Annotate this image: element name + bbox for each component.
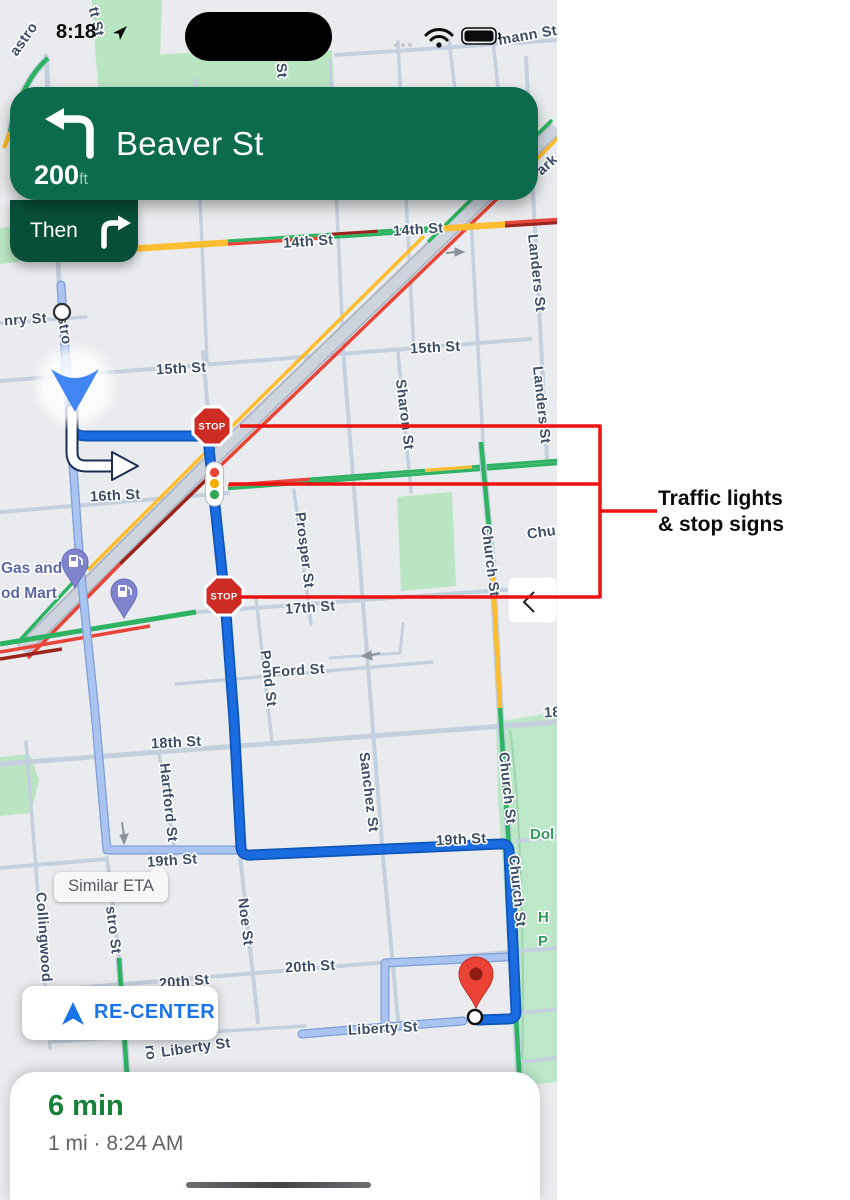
wifi-icon [422, 26, 456, 48]
similar-eta-label: Similar ETA [54, 877, 168, 896]
trip-eta: 6 min [48, 1090, 124, 1123]
street-label: 19th St [436, 831, 487, 850]
park-label: P [538, 933, 548, 950]
home-indicator[interactable] [186, 1182, 371, 1188]
then-maneuver-box[interactable]: Then [10, 200, 138, 262]
gas-station-label: Gas and [1, 560, 62, 577]
svg-text:STOP: STOP [198, 422, 226, 433]
trip-summary-sheet[interactable]: 6 min 1 mi · 8:24 AM [10, 1072, 540, 1200]
street-label: 15th St [410, 339, 461, 358]
distance-unit: ft [79, 171, 88, 188]
street-label: 20th St [285, 958, 336, 977]
status-bar: 8:18 [0, 0, 557, 70]
park-label: H [538, 909, 549, 926]
then-label: Then [30, 219, 78, 243]
traffic-light-icon [206, 462, 224, 506]
svg-text:STOP: STOP [210, 592, 238, 603]
street-label: 18th St [151, 734, 202, 753]
navigation-banner[interactable]: 200ft Beaver St [10, 87, 538, 200]
street-label: nry St [3, 311, 47, 330]
street-label: 16th St [90, 487, 141, 506]
street-label: 15th St [156, 360, 207, 379]
similar-eta-bubble[interactable]: Similar ETA [54, 872, 168, 902]
dynamic-island [185, 12, 332, 61]
street-label: 18 [544, 705, 557, 722]
location-services-icon [111, 24, 129, 42]
maneuver-distance: 200ft [34, 160, 88, 191]
turn-right-icon [96, 214, 134, 250]
clock-time: 8:18 [56, 21, 116, 44]
gas-station-label: od Mart [1, 585, 57, 602]
next-street-name: Beaver St [116, 125, 264, 163]
annotation-caption: Traffic lights & stop signs [658, 486, 784, 538]
battery-icon [461, 27, 505, 47]
street-label: ro [141, 1044, 159, 1061]
recenter-label: RE-CENTER [94, 1001, 215, 1024]
park-label: Dol [530, 826, 554, 843]
panel-collapse-button[interactable] [508, 577, 557, 623]
turn-left-icon [40, 99, 104, 161]
stop-sign-icon: STOP [205, 577, 243, 615]
route-end-dot [468, 1010, 482, 1024]
stop-sign-icon: STOP [193, 407, 231, 445]
trip-details: 1 mi · 8:24 AM [48, 1132, 183, 1156]
route-start-dot [54, 304, 70, 320]
phone-screenshot: astro tt St mann St 14th St 14th St nry … [0, 0, 557, 1200]
current-location-puck [30, 341, 120, 431]
recenter-button[interactable]: RE-CENTER [22, 986, 218, 1040]
recenter-arrow-icon [60, 1001, 86, 1027]
